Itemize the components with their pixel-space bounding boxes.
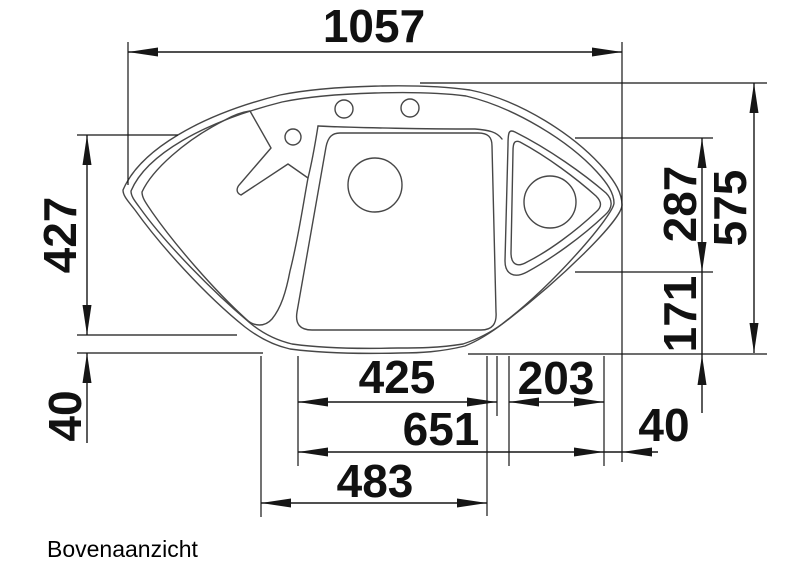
dim-overall-depth: 575 xyxy=(704,83,759,353)
dim-main-bowl-width-label: 425 xyxy=(359,351,436,403)
tap-hole-right xyxy=(401,99,419,117)
dim-corner-bowl-height: 287 xyxy=(654,138,707,413)
technical-drawing-page: 1057 427 40 287 171 575 425 xyxy=(0,0,800,582)
dim-corner-section-width: 203 xyxy=(509,352,604,407)
sink-dimension-drawing: 1057 427 40 287 171 575 425 xyxy=(0,0,800,582)
dim-left-bottom-offset-label: 40 xyxy=(39,390,91,441)
dim-drainer-width-label: 483 xyxy=(337,455,414,507)
sink-outer-outline xyxy=(123,86,622,354)
dim-combined-width-label: 651 xyxy=(403,403,480,455)
faucet-ledge-right-edge xyxy=(308,126,318,178)
faucet-ledge-hole xyxy=(285,129,301,145)
dim-corner-section-width-label: 203 xyxy=(518,352,595,404)
dim-drainer-width: 483 xyxy=(261,455,487,508)
dim-left-height: 427 xyxy=(34,135,92,335)
dim-main-bowl-width: 425 xyxy=(298,351,497,407)
corner-bowl-drain-hole xyxy=(524,176,576,228)
dim-right-offset: 40 xyxy=(604,399,690,457)
sink-inner-rim xyxy=(131,93,614,349)
tap-hole-left xyxy=(335,100,353,118)
dim-left-height-label: 427 xyxy=(34,197,86,274)
dim-corner-bowl-height-label: 287 xyxy=(654,166,706,243)
corner-bowl-step xyxy=(505,131,611,275)
sink-body xyxy=(123,86,622,354)
dim-right-lower-height: 171 xyxy=(654,276,707,385)
dim-right-offset-label: 40 xyxy=(638,399,689,451)
dim-combined-width: 651 xyxy=(298,403,604,457)
dim-overall-width: 1057 xyxy=(128,0,622,57)
dim-left-bottom-offset: 40 xyxy=(39,353,92,443)
drainer-tray xyxy=(142,111,308,325)
caption: Bovenaanzicht xyxy=(47,536,198,562)
main-bowl-drain-hole xyxy=(348,158,402,212)
main-bowl xyxy=(297,133,497,330)
dim-overall-width-label: 1057 xyxy=(323,0,425,52)
dim-right-lower-height-label: 171 xyxy=(654,276,706,353)
dim-overall-depth-label: 575 xyxy=(704,170,756,247)
